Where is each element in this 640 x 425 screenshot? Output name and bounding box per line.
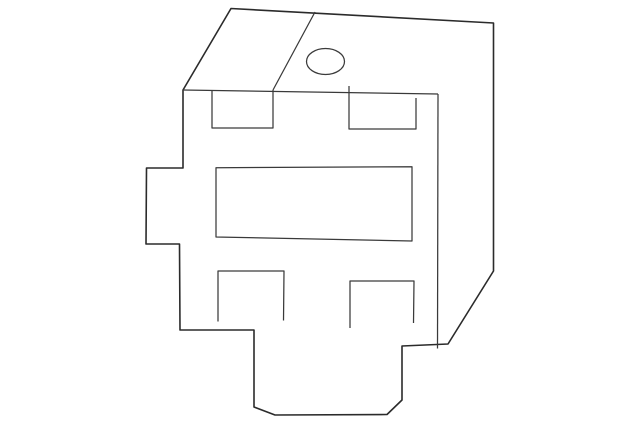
part-silhouette — [146, 9, 494, 416]
part-diagram-canvas — [0, 0, 640, 425]
part-line-drawing — [0, 0, 640, 425]
page: { "page": { "background": "#ffffff", "wi… — [0, 0, 640, 425]
front-right-edge — [438, 94, 439, 349]
